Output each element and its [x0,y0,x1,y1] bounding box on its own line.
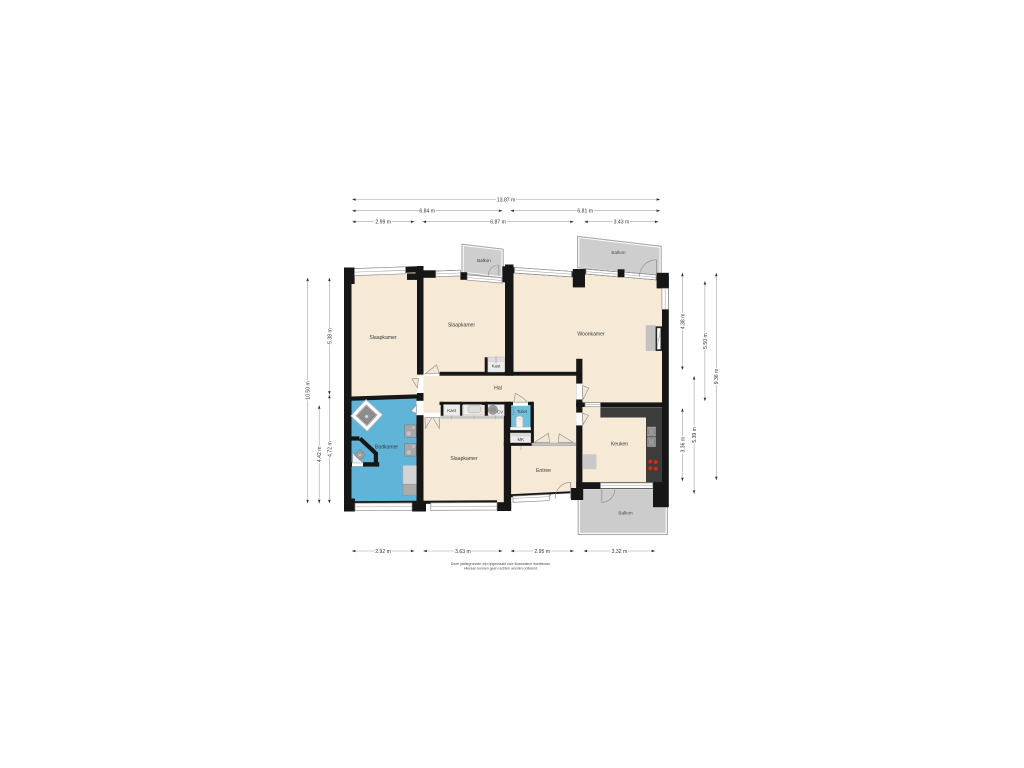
svg-text:Balkon: Balkon [618,511,633,516]
svg-text:Hieraan kunnen geen rechten wo: Hieraan kunnen geen rechten worden ontle… [464,567,538,571]
svg-text:Badkamer: Badkamer [375,445,399,451]
svg-text:2.92 m: 2.92 m [375,549,391,555]
svg-text:4.38 m: 4.38 m [680,314,686,330]
svg-text:5.50 m: 5.50 m [703,333,709,349]
svg-text:9.36 m: 9.36 m [714,369,720,385]
svg-text:4.72 m: 4.72 m [327,441,333,457]
svg-text:5.39 m: 5.39 m [692,427,698,443]
svg-text:5.38 m: 5.38 m [327,328,333,344]
svg-text:6.87 m: 6.87 m [490,220,506,226]
svg-text:3.32 m: 3.32 m [612,549,628,555]
svg-text:10.50 m: 10.50 m [305,381,311,399]
svg-text:MK: MK [518,437,525,442]
svg-text:Woonkamer: Woonkamer [577,332,605,338]
svg-text:Balkon: Balkon [611,250,626,255]
svg-text:Kast: Kast [492,364,502,369]
svg-text:Slaapkamer: Slaapkamer [450,456,477,462]
svg-text:3.43 m: 3.43 m [614,220,630,226]
svg-text:2.99 m: 2.99 m [375,220,391,226]
svg-text:CV: CV [497,410,503,415]
svg-text:Keuken: Keuken [611,442,628,448]
svg-text:2.95 m: 2.95 m [534,549,550,555]
svg-text:Deze plattegronden zijn opgema: Deze plattegronden zijn opgemaakt voor i… [451,562,551,566]
svg-text:Entree: Entree [536,468,551,474]
svg-text:Toilet: Toilet [517,409,528,414]
svg-text:6.84 m: 6.84 m [419,209,435,215]
svg-text:Balkon: Balkon [477,258,491,263]
svg-text:Hal: Hal [494,386,502,392]
svg-text:Slaapkamer: Slaapkamer [448,323,475,329]
svg-text:3.63 m: 3.63 m [455,549,471,555]
svg-text:4.42 m: 4.42 m [317,447,323,463]
svg-text:3.36 m: 3.36 m [680,437,686,453]
svg-text:6.81 m: 6.81 m [577,209,593,215]
svg-text:Kast: Kast [447,408,457,413]
svg-text:Slaapkamer: Slaapkamer [369,335,396,341]
svg-text:13.87 m: 13.87 m [497,197,515,203]
